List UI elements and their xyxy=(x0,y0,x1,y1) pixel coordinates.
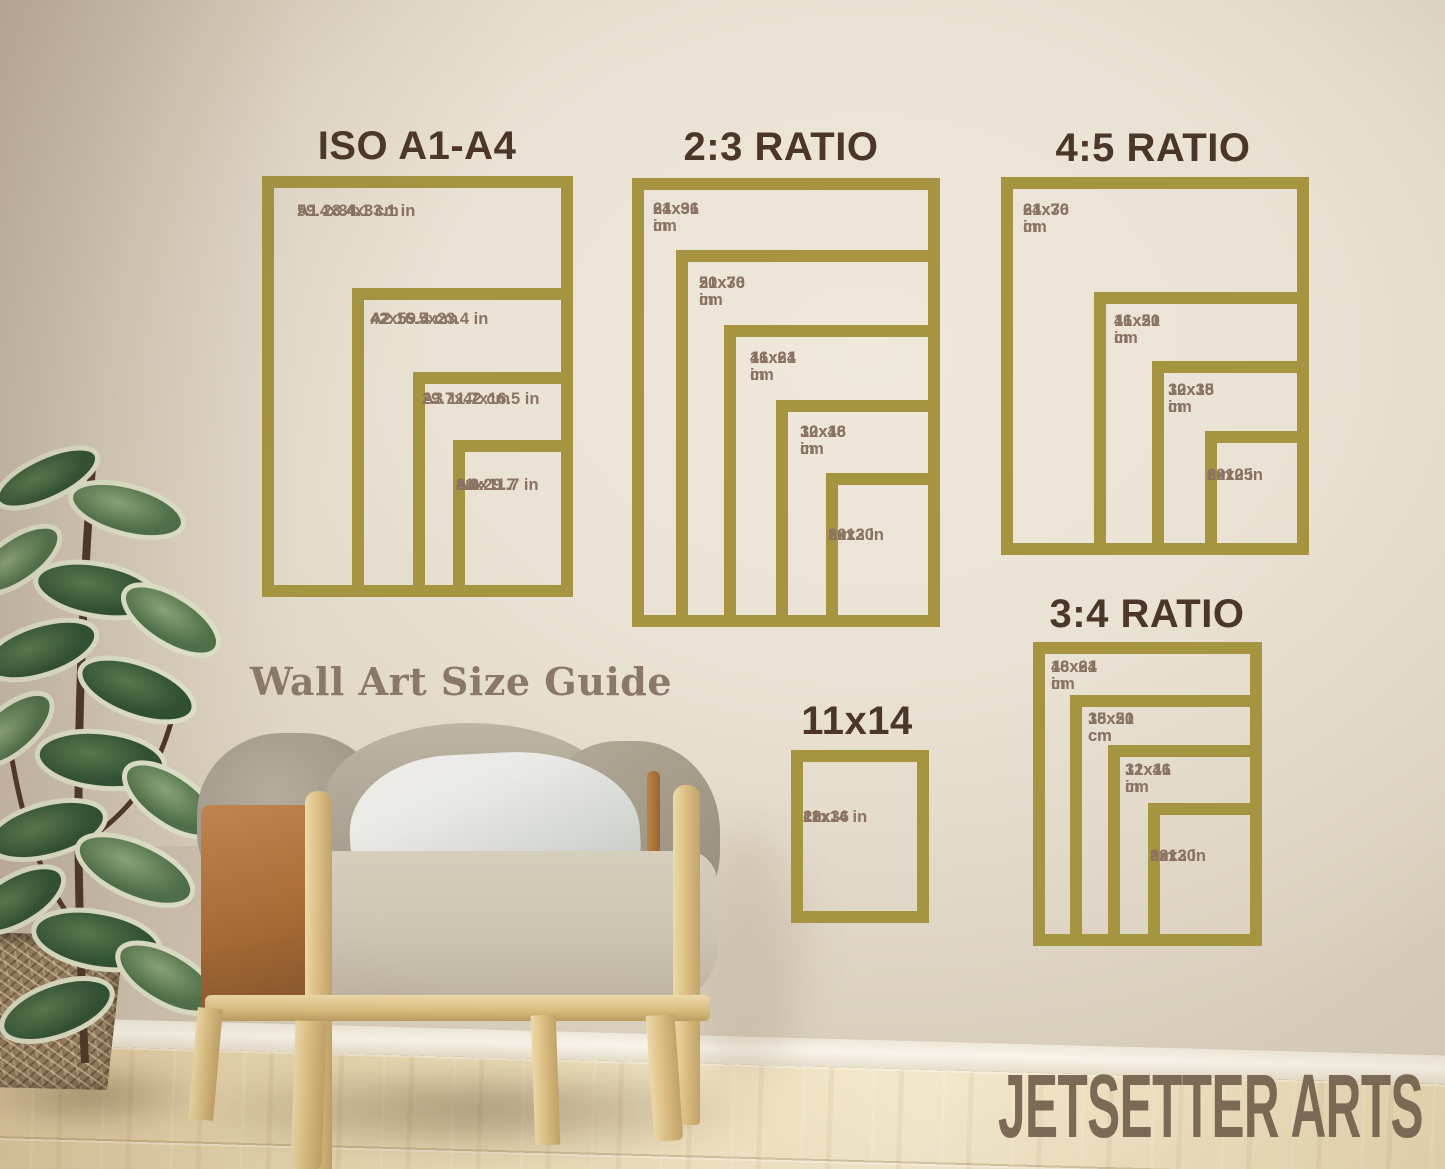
size-label-line: 41x61 cm xyxy=(750,350,796,385)
brand-logo-text: JETSETTER ARTS xyxy=(998,1062,1423,1152)
armchair-seat-cushion xyxy=(273,851,718,1001)
size-label-line: 51x76 cm xyxy=(699,275,745,310)
size-label-line: cm xyxy=(1207,467,1231,484)
frame-8x12 xyxy=(826,473,940,627)
frame-a4 xyxy=(453,440,573,597)
section-title-4-5: 4:5 RATIO xyxy=(1003,128,1303,168)
section-title-3-4: 3:4 RATIO xyxy=(997,594,1297,634)
size-label-line: 42x59.4 cm xyxy=(370,311,458,328)
size-label-line: cm xyxy=(456,477,480,494)
size-label-line: 61x91 cm xyxy=(653,201,699,236)
size-label-line: cm xyxy=(803,809,827,826)
section-title-2-3: 2:3 RATIO xyxy=(631,127,931,167)
frame-9x12 xyxy=(1148,803,1262,946)
product-photo: ISO A1-A4 A1 23.4x33.1 in 59.4x84.1 cm A… xyxy=(0,0,1445,1169)
armchair-wood-rail xyxy=(205,995,710,1021)
size-label-line: 31x41 cm xyxy=(1125,762,1171,797)
armchair-leg-back-right xyxy=(531,1015,561,1146)
size-label-line: 29.7x42 cm xyxy=(422,391,510,408)
frame-8x10 xyxy=(1205,431,1309,555)
size-label-line: cm xyxy=(1150,848,1174,865)
size-label-line: 30x38 cm xyxy=(1168,382,1214,417)
armchair xyxy=(185,723,745,1169)
size-label-line: 61x76 cm xyxy=(1023,202,1069,237)
armchair-leg-back-left xyxy=(188,1007,223,1121)
size-label-line: cm xyxy=(828,527,852,544)
guide-watermark-title: Wall Art Size Guide xyxy=(250,661,650,703)
section-title-11x14: 11x14 xyxy=(707,701,1007,741)
size-label-line: 59.4x84.1 cm xyxy=(297,203,399,220)
size-label-line: 38x51 cm xyxy=(1088,711,1134,746)
size-label-line: 30x46 cm xyxy=(800,424,846,459)
section-title-iso: ISO A1-A4 xyxy=(267,126,567,166)
armchair-leg-front-left xyxy=(290,1021,326,1169)
size-label-line: 41x51 cm xyxy=(1114,313,1160,348)
size-label-line: 46x61 cm xyxy=(1051,659,1097,694)
frame-11x14 xyxy=(791,750,929,923)
